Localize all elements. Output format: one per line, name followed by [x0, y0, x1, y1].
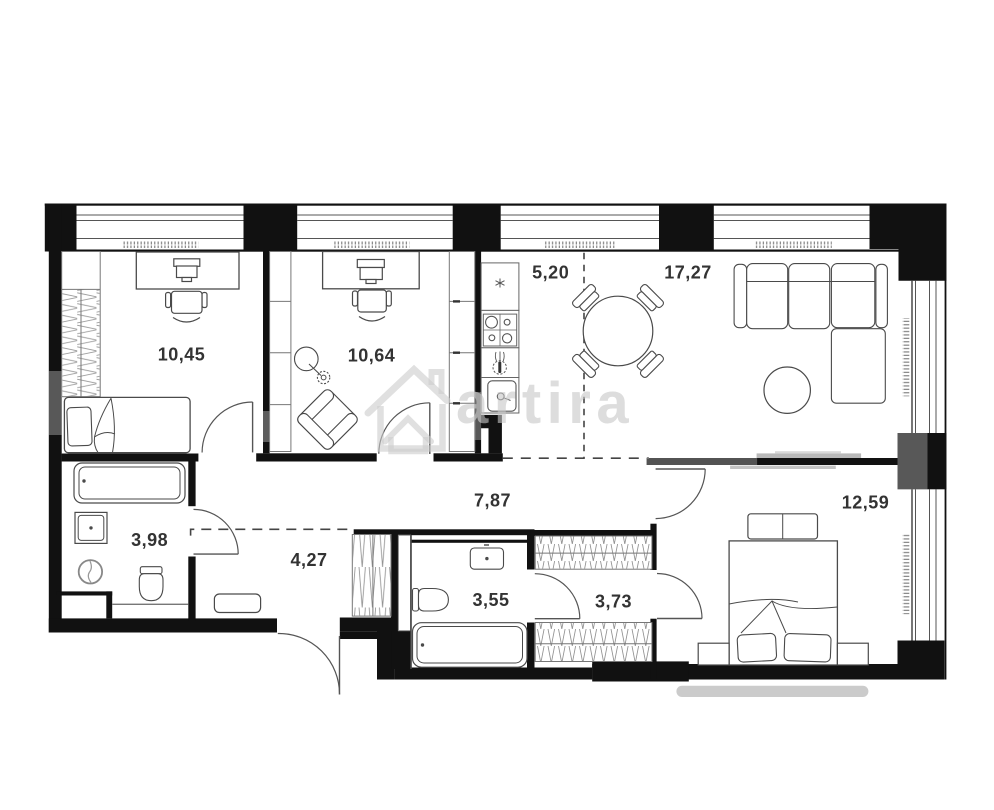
svg-text:3,98: 3,98 — [131, 530, 168, 550]
svg-text:4,27: 4,27 — [290, 550, 327, 570]
svg-text:17,27: 17,27 — [664, 263, 712, 283]
svg-text:10,45: 10,45 — [158, 345, 206, 365]
svg-text:artira: artira — [456, 371, 634, 436]
svg-text:10,64: 10,64 — [348, 346, 396, 366]
svg-text:3,55: 3,55 — [472, 590, 509, 610]
svg-text:3,73: 3,73 — [595, 592, 632, 612]
svg-text:5,20: 5,20 — [532, 263, 569, 283]
svg-text:12,59: 12,59 — [842, 493, 890, 513]
svg-text:7,87: 7,87 — [474, 491, 511, 511]
